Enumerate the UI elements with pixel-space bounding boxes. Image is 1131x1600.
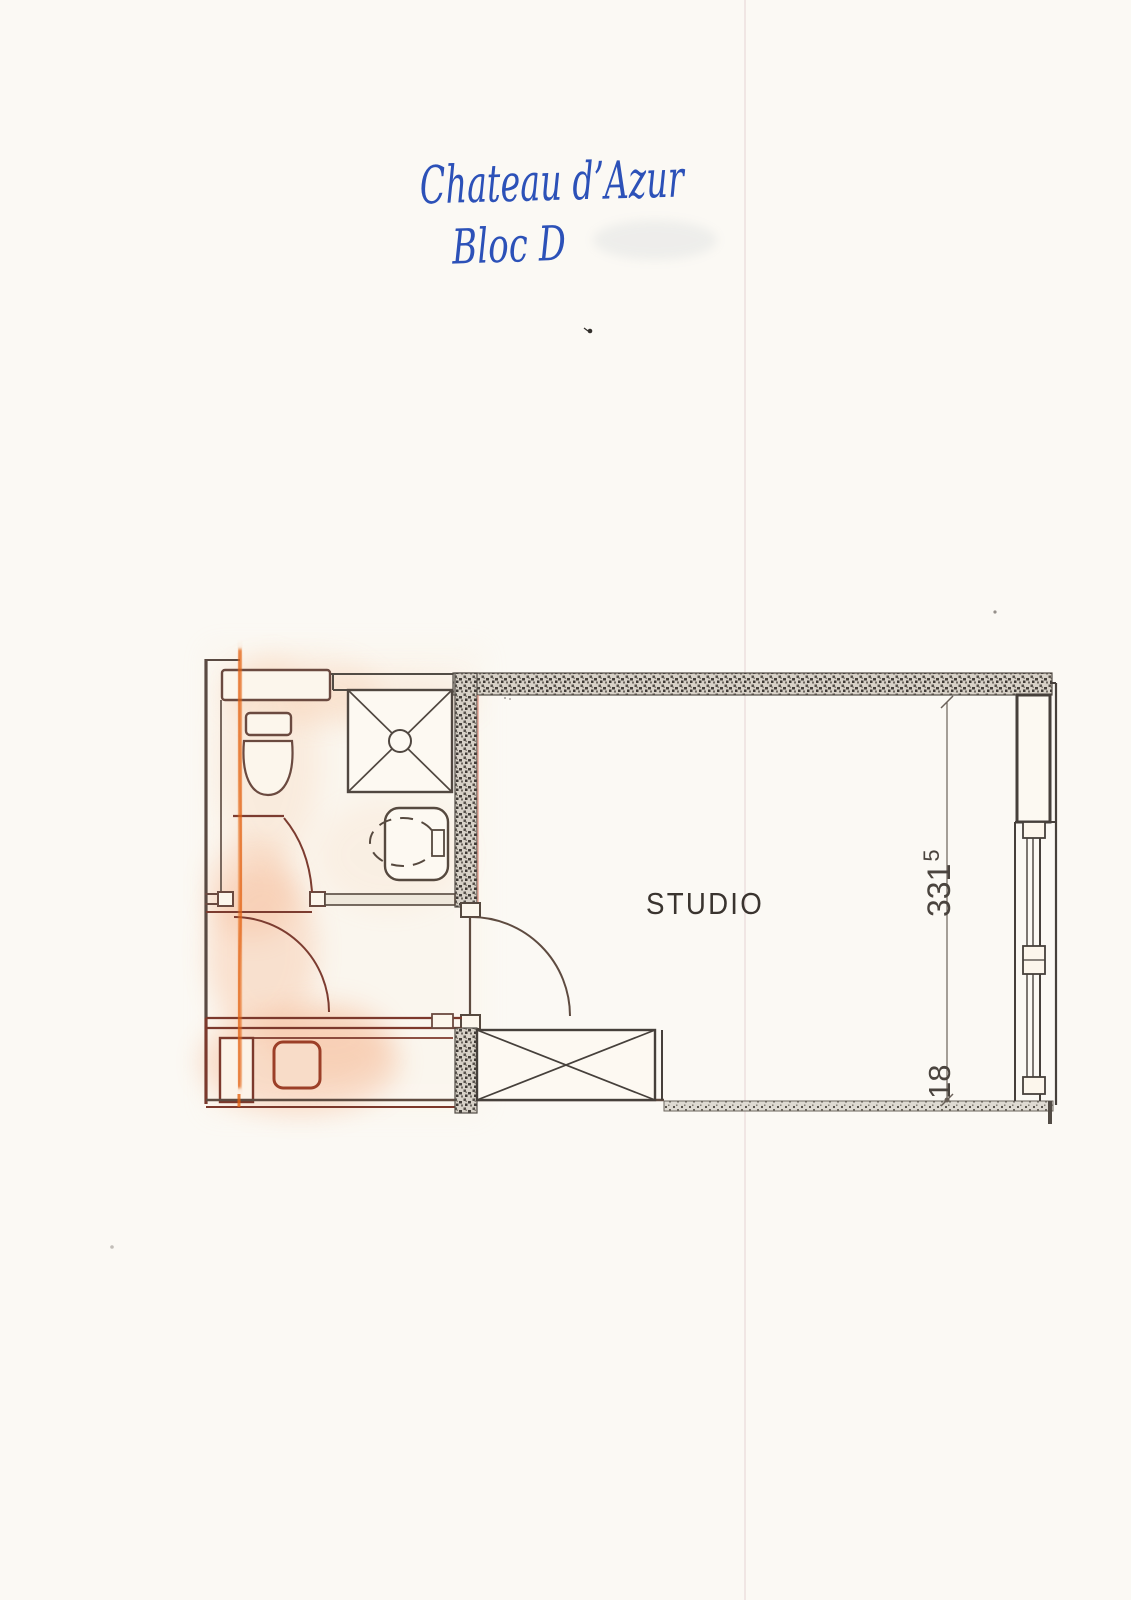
- title-line-1: Chateau d’Azur: [419, 149, 686, 216]
- studio-room-label: STUDIO: [646, 886, 764, 921]
- storage-closet: [455, 1028, 662, 1113]
- toilet-cistern: [246, 713, 291, 735]
- hatched-top-wall: [453, 673, 1052, 695]
- window-frame-block: [1023, 822, 1045, 838]
- pencil-smudge: [593, 220, 717, 260]
- toilet-bowl: [243, 741, 292, 795]
- window-frame-block: [1023, 1077, 1045, 1094]
- shower-drain: [389, 730, 411, 752]
- shower: [348, 690, 452, 792]
- marker-highlight-stroke: [239, 649, 241, 1107]
- hatched-pillar: [455, 1028, 477, 1113]
- scanned-floor-plan-page: Chateau d’Azur Bloc D: [0, 0, 1131, 1600]
- door-jamb: [432, 1014, 453, 1028]
- floor-plan-scan: Chateau d’Azur Bloc D: [0, 0, 1131, 1600]
- door-jamb: [310, 892, 325, 906]
- toilet: [243, 713, 292, 795]
- dimension-superscript: 5: [919, 849, 944, 861]
- door-jamb: [461, 903, 480, 917]
- hatched-partition-wall: [455, 673, 477, 907]
- dimension-value: 331: [921, 864, 957, 917]
- door-jamb: [218, 892, 233, 906]
- sink: [274, 1042, 320, 1088]
- right-return-wall: [1017, 695, 1050, 822]
- dimension-label-18: 18: [922, 1065, 957, 1099]
- door-jamb: [461, 1015, 480, 1029]
- title-line-2: Bloc D: [450, 216, 567, 276]
